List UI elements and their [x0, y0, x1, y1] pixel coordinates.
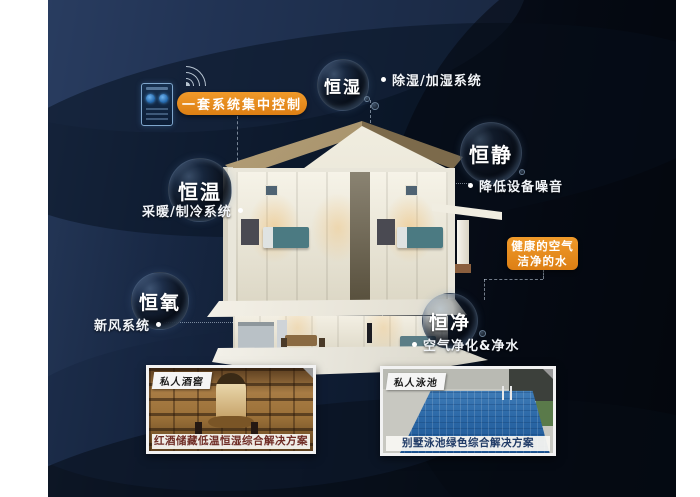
note-text: 新风系统: [94, 315, 150, 334]
mini-bubble: [519, 169, 525, 175]
wine-cellar-card: 私人酒窖 红酒储藏低温恒湿综合解决方案: [146, 365, 316, 454]
note-text: 除湿/加湿系统: [392, 70, 482, 89]
bullet-dot: [468, 183, 473, 188]
bullet-dot: [412, 342, 417, 347]
corner-fold: [543, 369, 553, 379]
dining-table: [285, 335, 317, 346]
central-control-callout: 一套系统集中控制: [177, 92, 307, 115]
smart-home-poster: 一套系统集中控制 健康的空气 洁净的水 恒湿 恒静 恒温 恒氧 恒净 除湿/加湿…: [0, 0, 700, 497]
mini-bubble: [364, 96, 370, 102]
house-porch-column: [457, 220, 469, 266]
control-knob: [146, 94, 155, 103]
bubble-label: 恒净: [429, 308, 471, 335]
kitchen-cabinets: [238, 322, 274, 348]
bubble-label: 恒静: [469, 139, 513, 168]
wifi-icon: [186, 62, 210, 86]
note-fresh-air-system: 新风系统: [94, 315, 161, 334]
wine-cellar-photo: 私人酒窖 红酒储藏低温恒湿综合解决方案: [149, 368, 313, 451]
bullet-dot: [238, 208, 243, 213]
note-heating-cooling-system: 采暖/制冷系统: [142, 201, 243, 220]
card-tag: 私人酒窖: [152, 372, 212, 389]
wall-art: [265, 185, 278, 196]
note-text: 空气净化&净水: [423, 335, 519, 354]
note-air-water-purification: 空气净化&净水: [412, 335, 519, 354]
bubble-label: 恒氧: [139, 288, 181, 315]
note-text: 采暖/制冷系统: [142, 201, 232, 220]
bedroom-bed: [397, 227, 443, 248]
phone-row: [146, 118, 168, 120]
bubble-constant-humidity: 恒湿: [317, 59, 369, 111]
note-dehumidify-humidify-system: 除湿/加湿系统: [381, 70, 482, 89]
wall-art: [405, 185, 418, 196]
phone-titlebar: [146, 87, 168, 90]
corner-fold: [303, 368, 313, 378]
healthy-air-water-callout: 健康的空气 洁净的水: [507, 237, 578, 270]
health-callout-line2: 洁净的水: [518, 254, 568, 269]
health-callout-line1: 健康的空气: [511, 239, 574, 254]
card-tag: 私人泳池: [386, 373, 446, 390]
connector-line: [543, 269, 544, 279]
bedroom-desk: [241, 219, 259, 245]
note-noise-reduction: 降低设备噪音: [468, 176, 563, 195]
central-control-label: 一套系统集中控制: [182, 94, 302, 113]
house-porch-column-base: [455, 264, 471, 273]
card-caption: 红酒储藏低温恒湿综合解决方案: [152, 434, 310, 449]
phone-row: [146, 108, 168, 110]
control-knob: [159, 94, 168, 103]
note-text: 降低设备噪音: [479, 176, 563, 195]
tv-cabinet: [367, 323, 372, 343]
dining-chair: [319, 338, 325, 347]
bullet-dot: [156, 322, 161, 327]
bullet-dot: [381, 77, 386, 82]
house-stair-opening: [350, 172, 370, 305]
pool-card: 私人泳池 别墅泳池绿色综合解决方案: [380, 366, 556, 456]
pool-ladder: [502, 386, 512, 400]
bedroom-bed: [263, 227, 309, 248]
cellar-table: [208, 416, 254, 428]
bubble-constant-quiet: 恒静: [460, 122, 522, 184]
card-caption: 别墅泳池绿色综合解决方案: [386, 436, 550, 451]
pool-photo: 私人泳池 别墅泳池绿色综合解决方案: [383, 369, 553, 453]
mini-bubble: [371, 102, 379, 110]
bedroom-desk: [377, 219, 395, 245]
smart-controller-phone-icon: [141, 83, 173, 126]
dining-chair: [281, 338, 287, 347]
bubble-label: 恒湿: [324, 73, 362, 98]
phone-row: [146, 113, 168, 115]
